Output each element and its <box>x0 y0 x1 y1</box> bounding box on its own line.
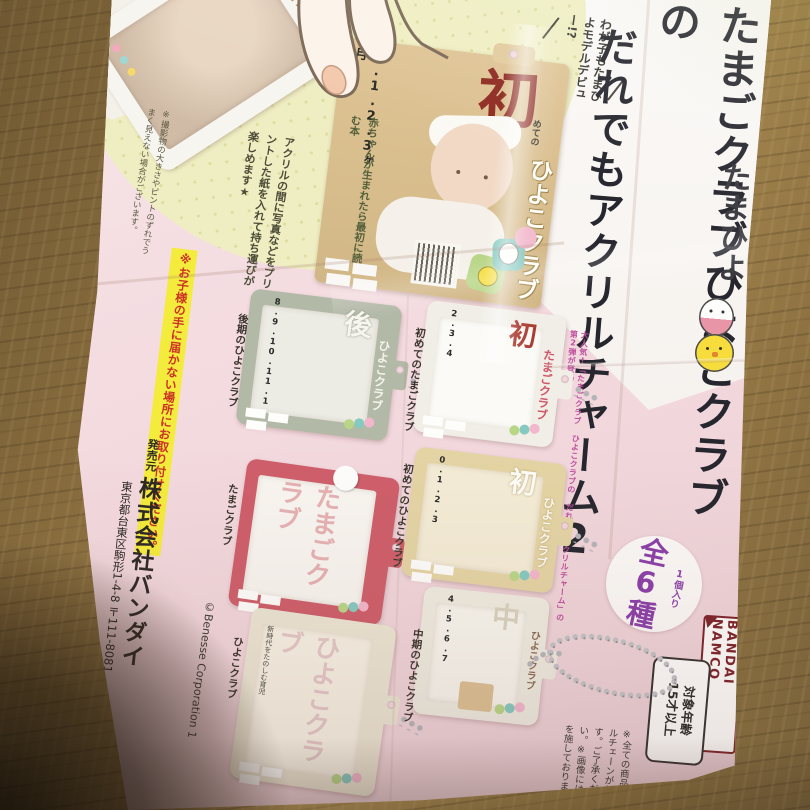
tamahiyo-chick-icon <box>695 334 734 372</box>
ball-chain-icon <box>516 616 688 712</box>
charm-photo-hajimete-hiyoko: 0.1.2.3 初 ひよこクラブ <box>401 446 568 594</box>
product-notes: ※全ての商品にボールチェーンが付きます。ご了承ください。※画像には処理を施してお… <box>448 714 633 810</box>
charm-photo-hiyoko: ひよこクラブ 新時代をたのしむ育児 <box>229 607 398 798</box>
cover-text-blocks <box>324 257 349 271</box>
charm-photo-tamago: たまごクラブ <box>227 458 400 626</box>
hand-illustration <box>222 0 452 158</box>
publisher-label: 発売元 <box>143 438 159 472</box>
copyright-text: ©Benesse Corporation 1 <box>172 600 217 810</box>
leaflet-paper: ひよこクラブ わが子もたまひよモデルデビュー!? アクリルの間に写真などをプリン… <box>0 0 810 810</box>
photo-scene: ひよこクラブ わが子もたまひよモデルデビュー!? アクリルの間に写真などをプリン… <box>0 0 810 810</box>
